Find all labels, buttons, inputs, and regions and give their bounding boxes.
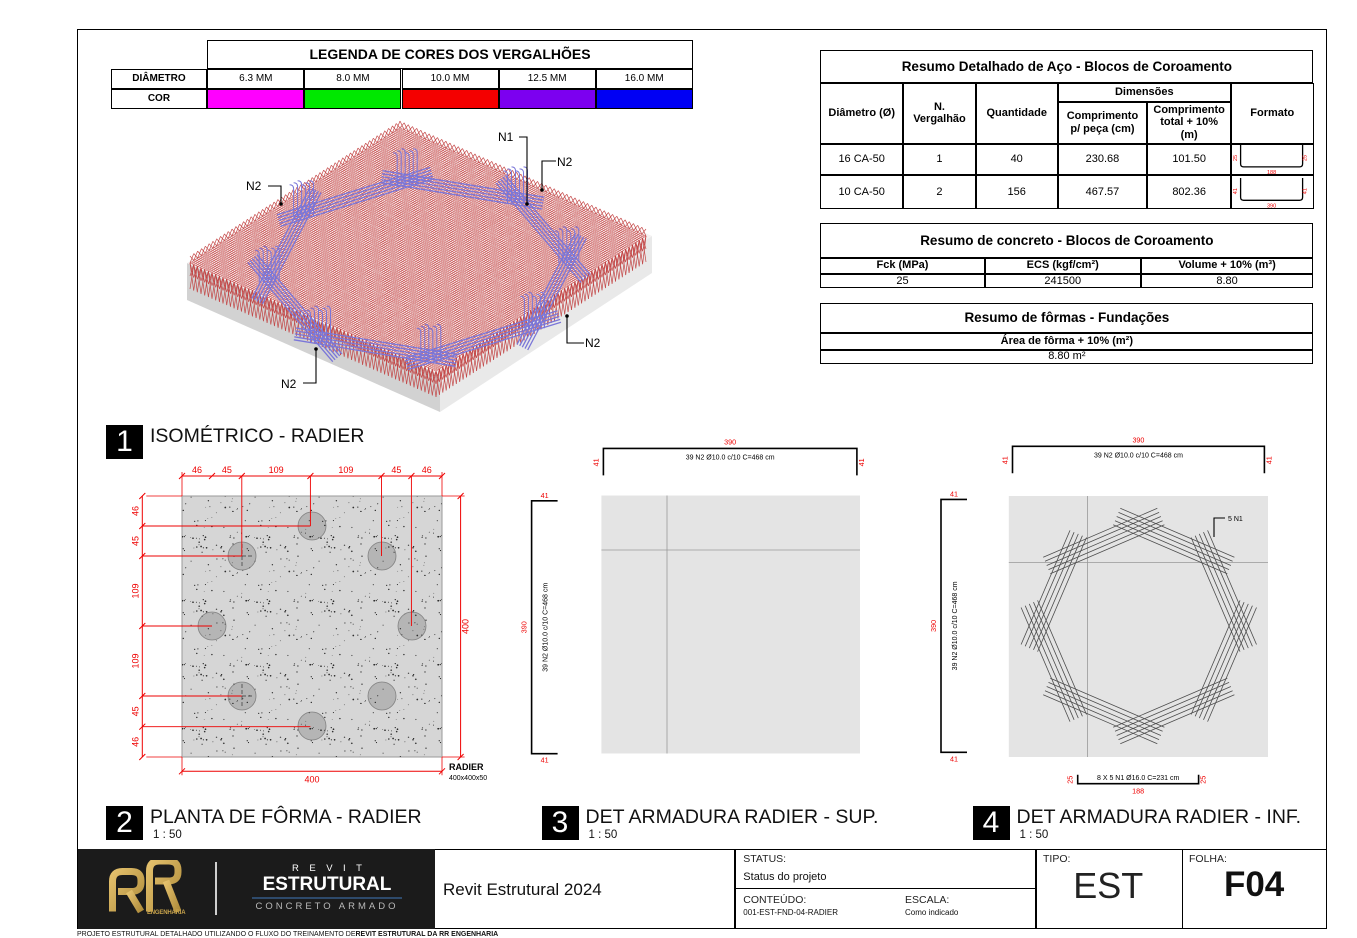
svg-text:ENGENHARIA: ENGENHARIA xyxy=(147,910,186,916)
